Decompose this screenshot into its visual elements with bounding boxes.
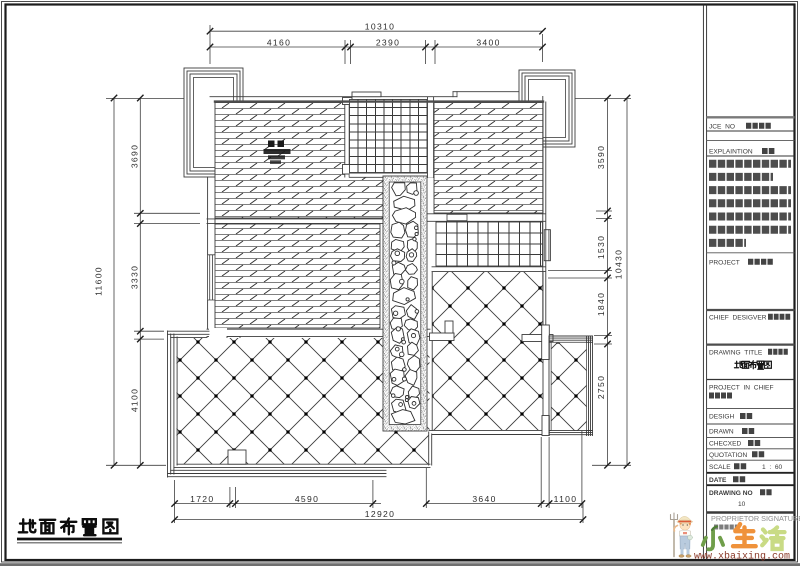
svg-text:1530: 1530 (596, 235, 606, 259)
svg-text:2750: 2750 (596, 375, 606, 399)
svg-text:3330: 3330 (130, 265, 140, 289)
svg-text:4160: 4160 (267, 38, 291, 48)
svg-text:www.xbaixing.com: www.xbaixing.com (694, 551, 790, 563)
svg-text:3400: 3400 (476, 38, 500, 48)
svg-text:DRAWN: DRAWN (709, 429, 734, 436)
svg-text:PROJECT IN CHIEF: PROJECT IN CHIEF (709, 385, 773, 392)
svg-text:PROJECT: PROJECT (709, 260, 740, 267)
svg-text:1840: 1840 (596, 292, 606, 316)
svg-text:DRAWING TITLE: DRAWING TITLE (709, 350, 763, 357)
svg-text:JCE NO: JCE NO (709, 124, 735, 131)
svg-text:10310: 10310 (365, 22, 395, 32)
svg-text:11600: 11600 (94, 266, 104, 296)
svg-text:3690: 3690 (130, 144, 140, 168)
svg-text:QUOTATION: QUOTATION (709, 452, 747, 459)
svg-text:PROPRIETOR SIGNATURE: PROPRIETOR SIGNATURE (711, 514, 800, 523)
svg-text:4590: 4590 (295, 494, 319, 504)
svg-text:1 : 60: 1 : 60 (762, 464, 782, 471)
svg-text:4100: 4100 (130, 388, 140, 412)
svg-text:CHIEF DESIGVER: CHIEF DESIGVER (709, 315, 767, 322)
svg-text:1720: 1720 (190, 494, 214, 504)
svg-text:DESIGH: DESIGH (709, 414, 735, 421)
svg-text:3640: 3640 (472, 494, 496, 504)
svg-text:12920: 12920 (365, 509, 395, 519)
svg-text:1100: 1100 (554, 494, 578, 504)
svg-text:CHECXED: CHECXED (709, 441, 741, 448)
svg-text:2390: 2390 (376, 38, 400, 48)
svg-text:10430: 10430 (614, 249, 624, 279)
svg-text:3590: 3590 (596, 145, 606, 169)
svg-text:DATE: DATE (709, 477, 727, 484)
svg-text:10: 10 (738, 501, 746, 508)
svg-text:EXPLAINTION: EXPLAINTION (709, 149, 753, 156)
svg-text:SCALE: SCALE (709, 464, 731, 471)
svg-text:DRAWING NO: DRAWING NO (709, 490, 753, 497)
